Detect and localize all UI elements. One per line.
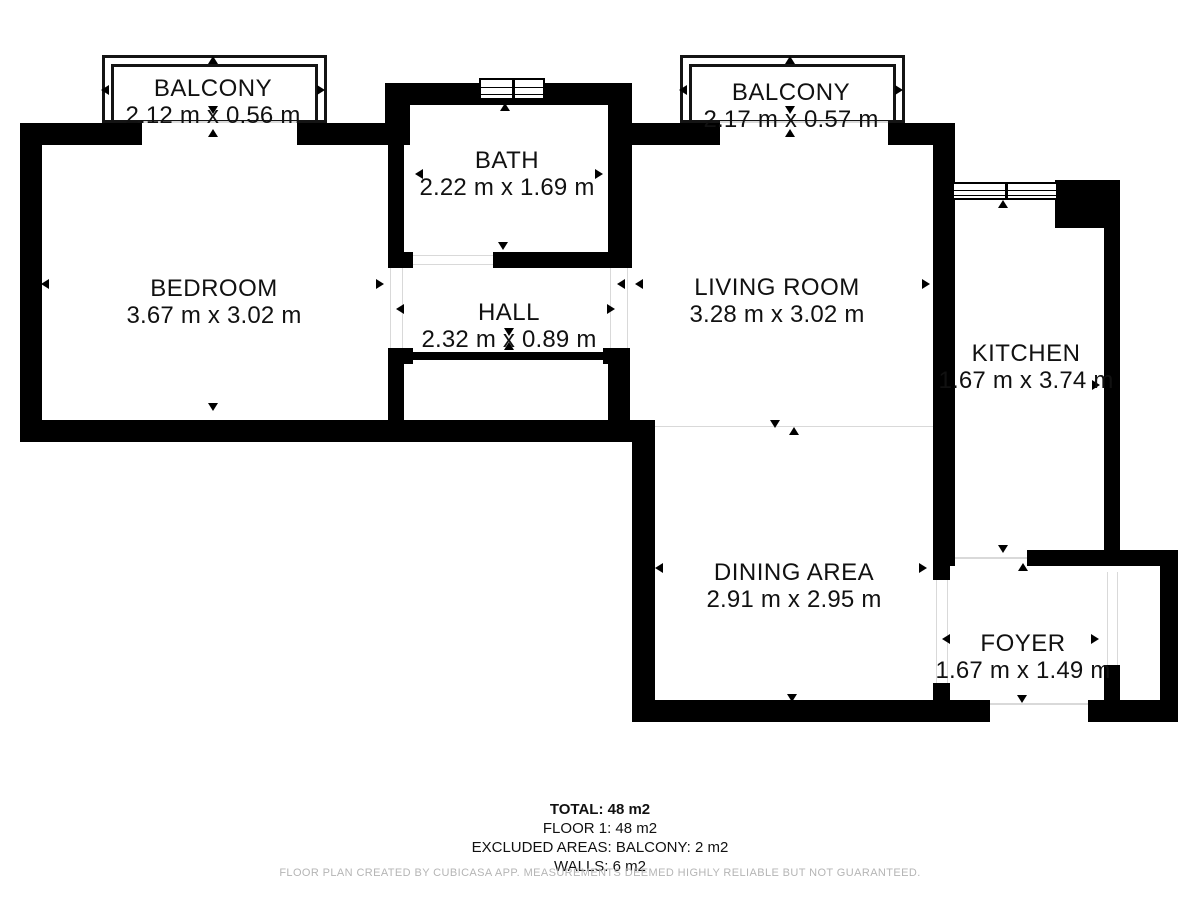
dimension-arrow-down-icon: [1017, 695, 1027, 703]
dimension-arrow-down-icon: [787, 694, 797, 702]
room-label-bath: BATH2.22 m x 1.69 m: [367, 147, 647, 201]
door-threshold: [990, 703, 1088, 705]
dimension-arrow-up-icon: [500, 103, 510, 111]
room-name-kitchen: KITCHEN: [886, 340, 1166, 367]
room-name-balcony-right: BALCONY: [651, 79, 931, 106]
room-label-dining-area: DINING AREA2.91 m x 2.95 m: [654, 559, 934, 613]
window-icon: [952, 182, 1058, 200]
area-summary: TOTAL: 48 m2 FLOOR 1: 48 m2 EXCLUDED ARE…: [0, 800, 1200, 876]
excluded-area-text: EXCLUDED AREAS: BALCONY: 2 m2: [0, 838, 1200, 857]
wall-segment: [632, 420, 655, 722]
dimension-arrow-up-icon: [208, 129, 218, 137]
dimension-arrow-up-icon: [785, 56, 795, 64]
room-label-living-room: LIVING ROOM3.28 m x 3.02 m: [637, 274, 917, 328]
wall-segment: [1055, 180, 1120, 228]
window-icon: [479, 78, 545, 100]
floor1-area-text: FLOOR 1: 48 m2: [0, 819, 1200, 838]
room-dimensions-bath: 2.22 m x 1.69 m: [367, 174, 647, 201]
wall-segment: [1088, 700, 1178, 722]
room-name-balcony-left: BALCONY: [73, 75, 353, 102]
room-label-balcony-left: BALCONY2.12 m x 0.56 m: [73, 75, 353, 129]
dimension-arrow-down-icon: [998, 545, 1008, 553]
door-threshold: [950, 557, 1027, 559]
door-threshold: [413, 264, 493, 265]
dimension-arrow-down-icon: [208, 403, 218, 411]
dimension-arrow-right-icon: [376, 279, 384, 289]
room-dimensions-foyer: 1.67 m x 1.49 m: [883, 657, 1163, 684]
wall-segment: [933, 566, 950, 580]
dimension-arrow-down-icon: [498, 242, 508, 250]
dimension-arrow-down-icon: [770, 420, 780, 428]
wall-segment: [493, 252, 630, 268]
room-name-hall: HALL: [369, 299, 649, 326]
room-dimensions-balcony-left: 2.12 m x 0.56 m: [73, 102, 353, 129]
room-name-bedroom: BEDROOM: [74, 275, 354, 302]
door-threshold: [413, 255, 493, 256]
room-name-living-room: LIVING ROOM: [637, 274, 917, 301]
room-label-foyer: FOYER1.67 m x 1.49 m: [883, 630, 1163, 684]
room-dimensions-hall: 2.32 m x 0.89 m: [369, 326, 649, 353]
wall-segment: [413, 352, 608, 360]
dimension-arrow-up-icon: [208, 56, 218, 64]
room-name-bath: BATH: [367, 147, 647, 174]
room-dimensions-kitchen: 1.67 m x 3.74 m: [886, 367, 1166, 394]
dimension-arrow-right-icon: [922, 279, 930, 289]
room-dimensions-dining-area: 2.91 m x 2.95 m: [654, 586, 934, 613]
room-dimensions-bedroom: 3.67 m x 3.02 m: [74, 302, 354, 329]
dimension-arrow-up-icon: [789, 427, 799, 435]
wall-segment: [1027, 550, 1178, 566]
room-name-foyer: FOYER: [883, 630, 1163, 657]
room-dimensions-living-room: 3.28 m x 3.02 m: [637, 301, 917, 328]
floor-plan-canvas: BALCONY2.12 m x 0.56 mBEDROOM3.67 m x 3.…: [0, 0, 1200, 900]
room-label-balcony-right: BALCONY2.17 m x 0.57 m: [651, 79, 931, 133]
room-label-hall: HALL2.32 m x 0.89 m: [369, 299, 649, 353]
dimension-arrow-up-icon: [1018, 563, 1028, 571]
room-label-kitchen: KITCHEN1.67 m x 3.74 m: [886, 340, 1166, 394]
dimension-arrow-left-icon: [41, 279, 49, 289]
wall-segment: [20, 420, 655, 442]
wall-segment: [388, 252, 413, 268]
room-label-bedroom: BEDROOM3.67 m x 3.02 m: [74, 275, 354, 329]
wall-segment: [632, 700, 990, 722]
dimension-arrow-up-icon: [498, 257, 508, 265]
room-name-dining-area: DINING AREA: [654, 559, 934, 586]
dimension-arrow-up-icon: [998, 200, 1008, 208]
room-dimensions-balcony-right: 2.17 m x 0.57 m: [651, 106, 931, 133]
wall-segment: [20, 123, 42, 437]
disclaimer-text: FLOOR PLAN CREATED BY CUBICASA APP. MEAS…: [0, 867, 1200, 879]
dimension-arrow-left-icon: [617, 279, 625, 289]
total-area-text: TOTAL: 48 m2: [0, 800, 1200, 819]
